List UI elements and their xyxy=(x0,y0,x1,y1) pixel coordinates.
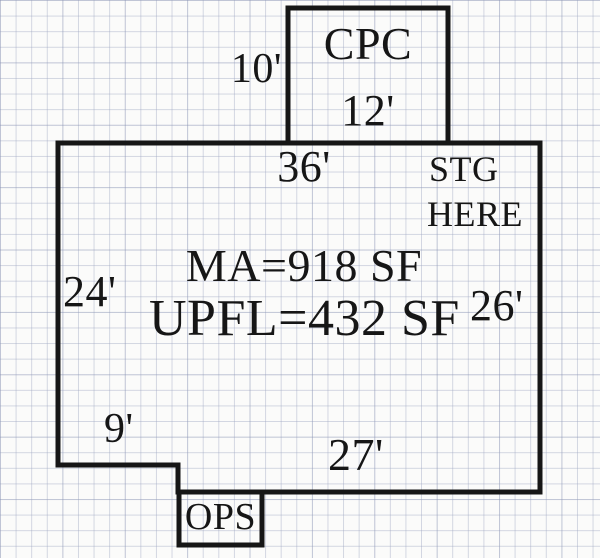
storage-note-line2: HERE xyxy=(427,196,523,232)
main-right-dimension: 26' xyxy=(470,284,523,328)
main-bottom-dimension: 27' xyxy=(328,432,384,478)
cpc-room-label: CPC xyxy=(288,21,448,67)
notch-dimension: 9' xyxy=(104,408,134,450)
cpc-height-dimension: 10' xyxy=(182,48,282,90)
storage-note-line1: STG xyxy=(429,151,499,187)
floor-plan-sheet: CPC 12' 10' 36' STG HERE MA=918 SF UPFL=… xyxy=(0,0,600,558)
upper-floor-square-footage: UPFL=432 SF xyxy=(149,293,459,345)
ops-room-label: OPS xyxy=(179,498,262,536)
main-left-dimension: 24' xyxy=(63,270,116,314)
cpc-width-dimension: 12' xyxy=(288,89,448,133)
main-top-dimension: 36' xyxy=(260,145,348,189)
main-area-square-footage: MA=918 SF xyxy=(149,243,459,289)
